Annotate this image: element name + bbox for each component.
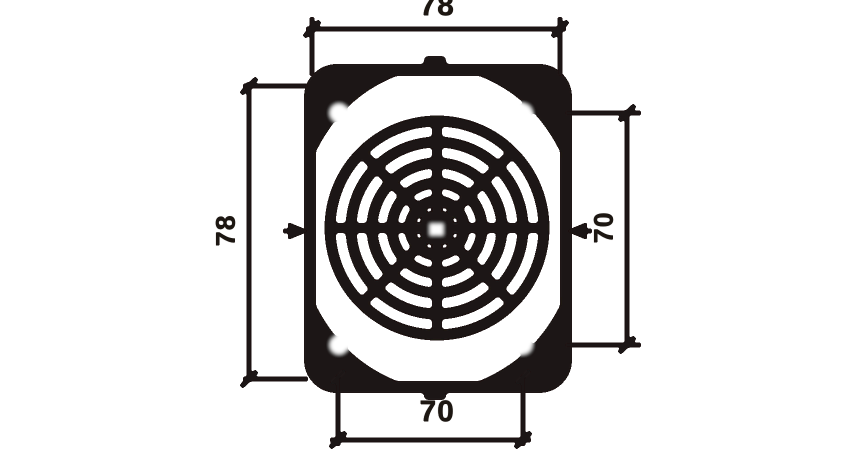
guard-hub-notch [430,224,443,235]
mounting-hole-bottom-right [514,336,532,354]
fan-guard-dimension-drawing [0,0,850,449]
fan-guard-front-view [310,56,566,400]
mounting-hole-top-right [514,104,532,122]
dimension-label-bottom: 70 [406,397,468,427]
dimension-label-right: 70 [591,205,618,251]
mounting-hole-top-left [330,104,348,122]
dimension-label-left: 78 [213,208,240,254]
technical-drawing-page: 78 70 78 70 [0,0,850,449]
mounting-hole-bottom-left [330,336,348,354]
guard-tab-top [424,56,446,72]
dimension-label-top: 78 [406,0,468,21]
